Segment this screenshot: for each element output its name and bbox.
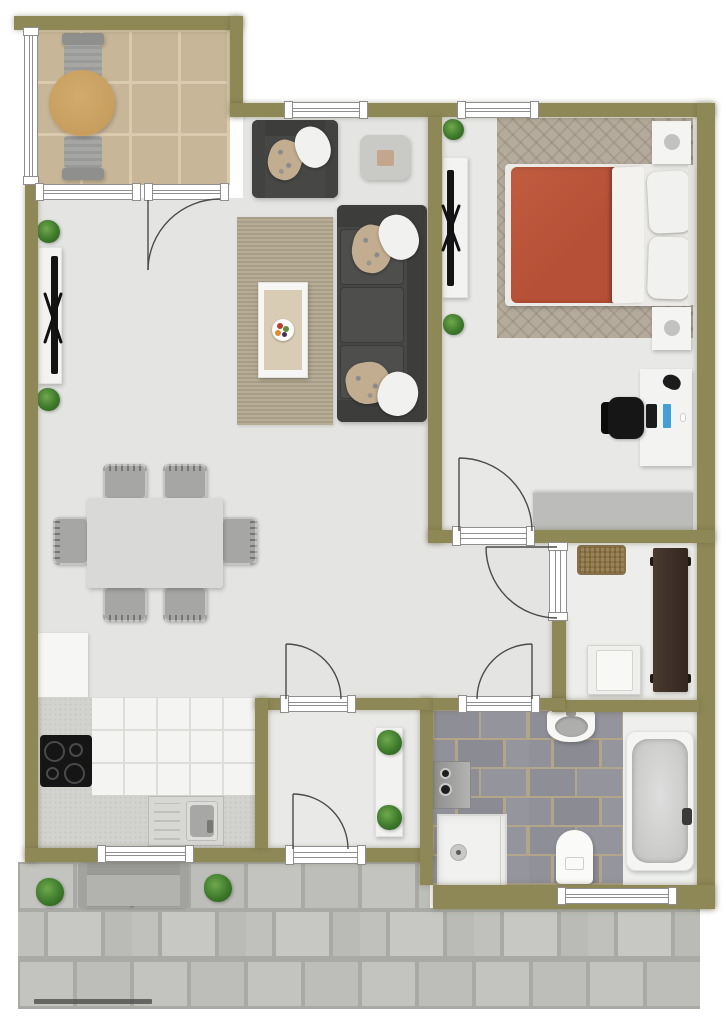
washer-dial-2 — [439, 783, 452, 796]
wall-left-exterior — [25, 183, 38, 862]
kitchen-tile-floor — [92, 697, 255, 795]
bedroom-door-threshold — [453, 527, 534, 545]
desk-monitor — [646, 404, 657, 428]
dining-chair-top-2 — [163, 464, 207, 500]
wall-hall-bottom — [552, 700, 699, 712]
garden-bench-arm-left — [78, 863, 87, 908]
outdoor-chair-south-seat — [64, 136, 102, 168]
plant-bedroom-south — [443, 314, 464, 335]
plant-living-north — [37, 220, 60, 243]
wardrobe — [653, 548, 688, 692]
plant-vestibule-north — [377, 730, 402, 755]
vestibule-exterior-door-threshold — [286, 846, 365, 864]
balcony-side-window — [24, 28, 38, 184]
cooktop-burner-4 — [64, 763, 85, 784]
bed-duvet — [511, 167, 615, 303]
floor-plan — [0, 0, 724, 1024]
living-tv — [51, 256, 58, 374]
wall-balcony-right — [230, 16, 243, 117]
bathroom-window — [558, 888, 676, 904]
balcony-front-window — [36, 184, 140, 200]
nightstand-south-lamp — [664, 320, 680, 336]
shower — [437, 814, 507, 892]
hallway-door-threshold — [549, 543, 567, 620]
wall-vestibule-left — [255, 698, 268, 848]
wall-balcony-top — [14, 16, 243, 30]
wall-bedroom-bottom-left — [428, 530, 455, 543]
bed-pillow-top — [646, 170, 691, 234]
bush-left — [36, 878, 64, 906]
nightstand-north-lamp — [664, 134, 680, 150]
bathroom-sink-basin — [555, 716, 588, 737]
living-top-window — [285, 102, 367, 118]
bathroom-door-threshold — [459, 696, 539, 712]
bathtub-inner — [632, 739, 688, 863]
garden-bench-arm-right — [180, 863, 189, 908]
bed-headboard — [688, 165, 695, 305]
desk-mouse — [680, 413, 686, 422]
wall-right-exterior — [697, 103, 715, 909]
wall-bath-top-right — [537, 698, 565, 710]
bush-right — [204, 874, 232, 902]
plant-bedroom-north — [443, 119, 464, 140]
washer-dial-1 — [440, 768, 451, 779]
bedroom-dresser — [533, 493, 693, 530]
garden-bench-back — [80, 862, 187, 875]
desk-blue-book — [663, 404, 671, 428]
washing-machine — [433, 761, 471, 809]
wall-vestibule-bath-divider — [420, 698, 433, 885]
cooktop-burner-2 — [69, 743, 83, 757]
balcony-door-threshold — [145, 184, 228, 200]
bed-sheet-fold — [612, 166, 644, 303]
outdoor-chair-south — [62, 168, 104, 180]
wall-vestibule-top-right — [353, 698, 433, 710]
toilet-seat-line — [565, 857, 584, 870]
watermark — [34, 999, 152, 1004]
armchair-arm-left — [252, 120, 265, 198]
bedroom-tv-console — [442, 157, 468, 298]
bathtub-faucet — [682, 808, 692, 825]
kitchen-faucet — [207, 820, 213, 833]
wall-living-bedroom — [428, 117, 442, 543]
wall-bottom-kitchen — [25, 848, 433, 862]
corridor-floor — [428, 543, 566, 700]
bedroom-top-window — [458, 102, 538, 118]
dining-chair-bottom-1 — [103, 586, 147, 622]
cooktop-burner-1 — [44, 741, 65, 762]
cooktop-burner-3 — [46, 767, 59, 780]
garden-bench-seat — [83, 875, 184, 906]
outdoor-chair-north — [62, 33, 104, 45]
bedroom-tv — [447, 170, 454, 286]
kitchen-cabinet-white — [38, 633, 88, 697]
sofa-cushion-2 — [340, 287, 404, 343]
shower-drain-dot — [456, 850, 461, 855]
dining-chair-right — [221, 517, 257, 565]
kitchen-window — [98, 846, 193, 862]
bed-pillow-bottom — [647, 236, 691, 299]
fruit-orange — [275, 330, 281, 336]
dining-table — [87, 498, 223, 588]
vestibule-interior-door-threshold — [281, 696, 355, 712]
plant-living-south — [37, 388, 60, 411]
fruit-dark — [282, 332, 287, 337]
kitchen-sink-drainboard — [154, 803, 180, 840]
wall-bath-top-left — [433, 698, 461, 710]
side-table-tray — [377, 150, 394, 166]
living-tv-console — [38, 247, 62, 384]
office-chair-seat — [608, 397, 644, 439]
shower-door-line — [500, 816, 501, 890]
dining-chair-top-1 — [103, 464, 147, 500]
outdoor-round-table — [49, 70, 115, 136]
dining-chair-bottom-2 — [163, 586, 207, 622]
dining-chair-left — [53, 517, 89, 565]
plant-vestibule-south — [377, 805, 402, 830]
doormat — [577, 545, 626, 575]
hall-cabinet-door — [596, 650, 633, 691]
